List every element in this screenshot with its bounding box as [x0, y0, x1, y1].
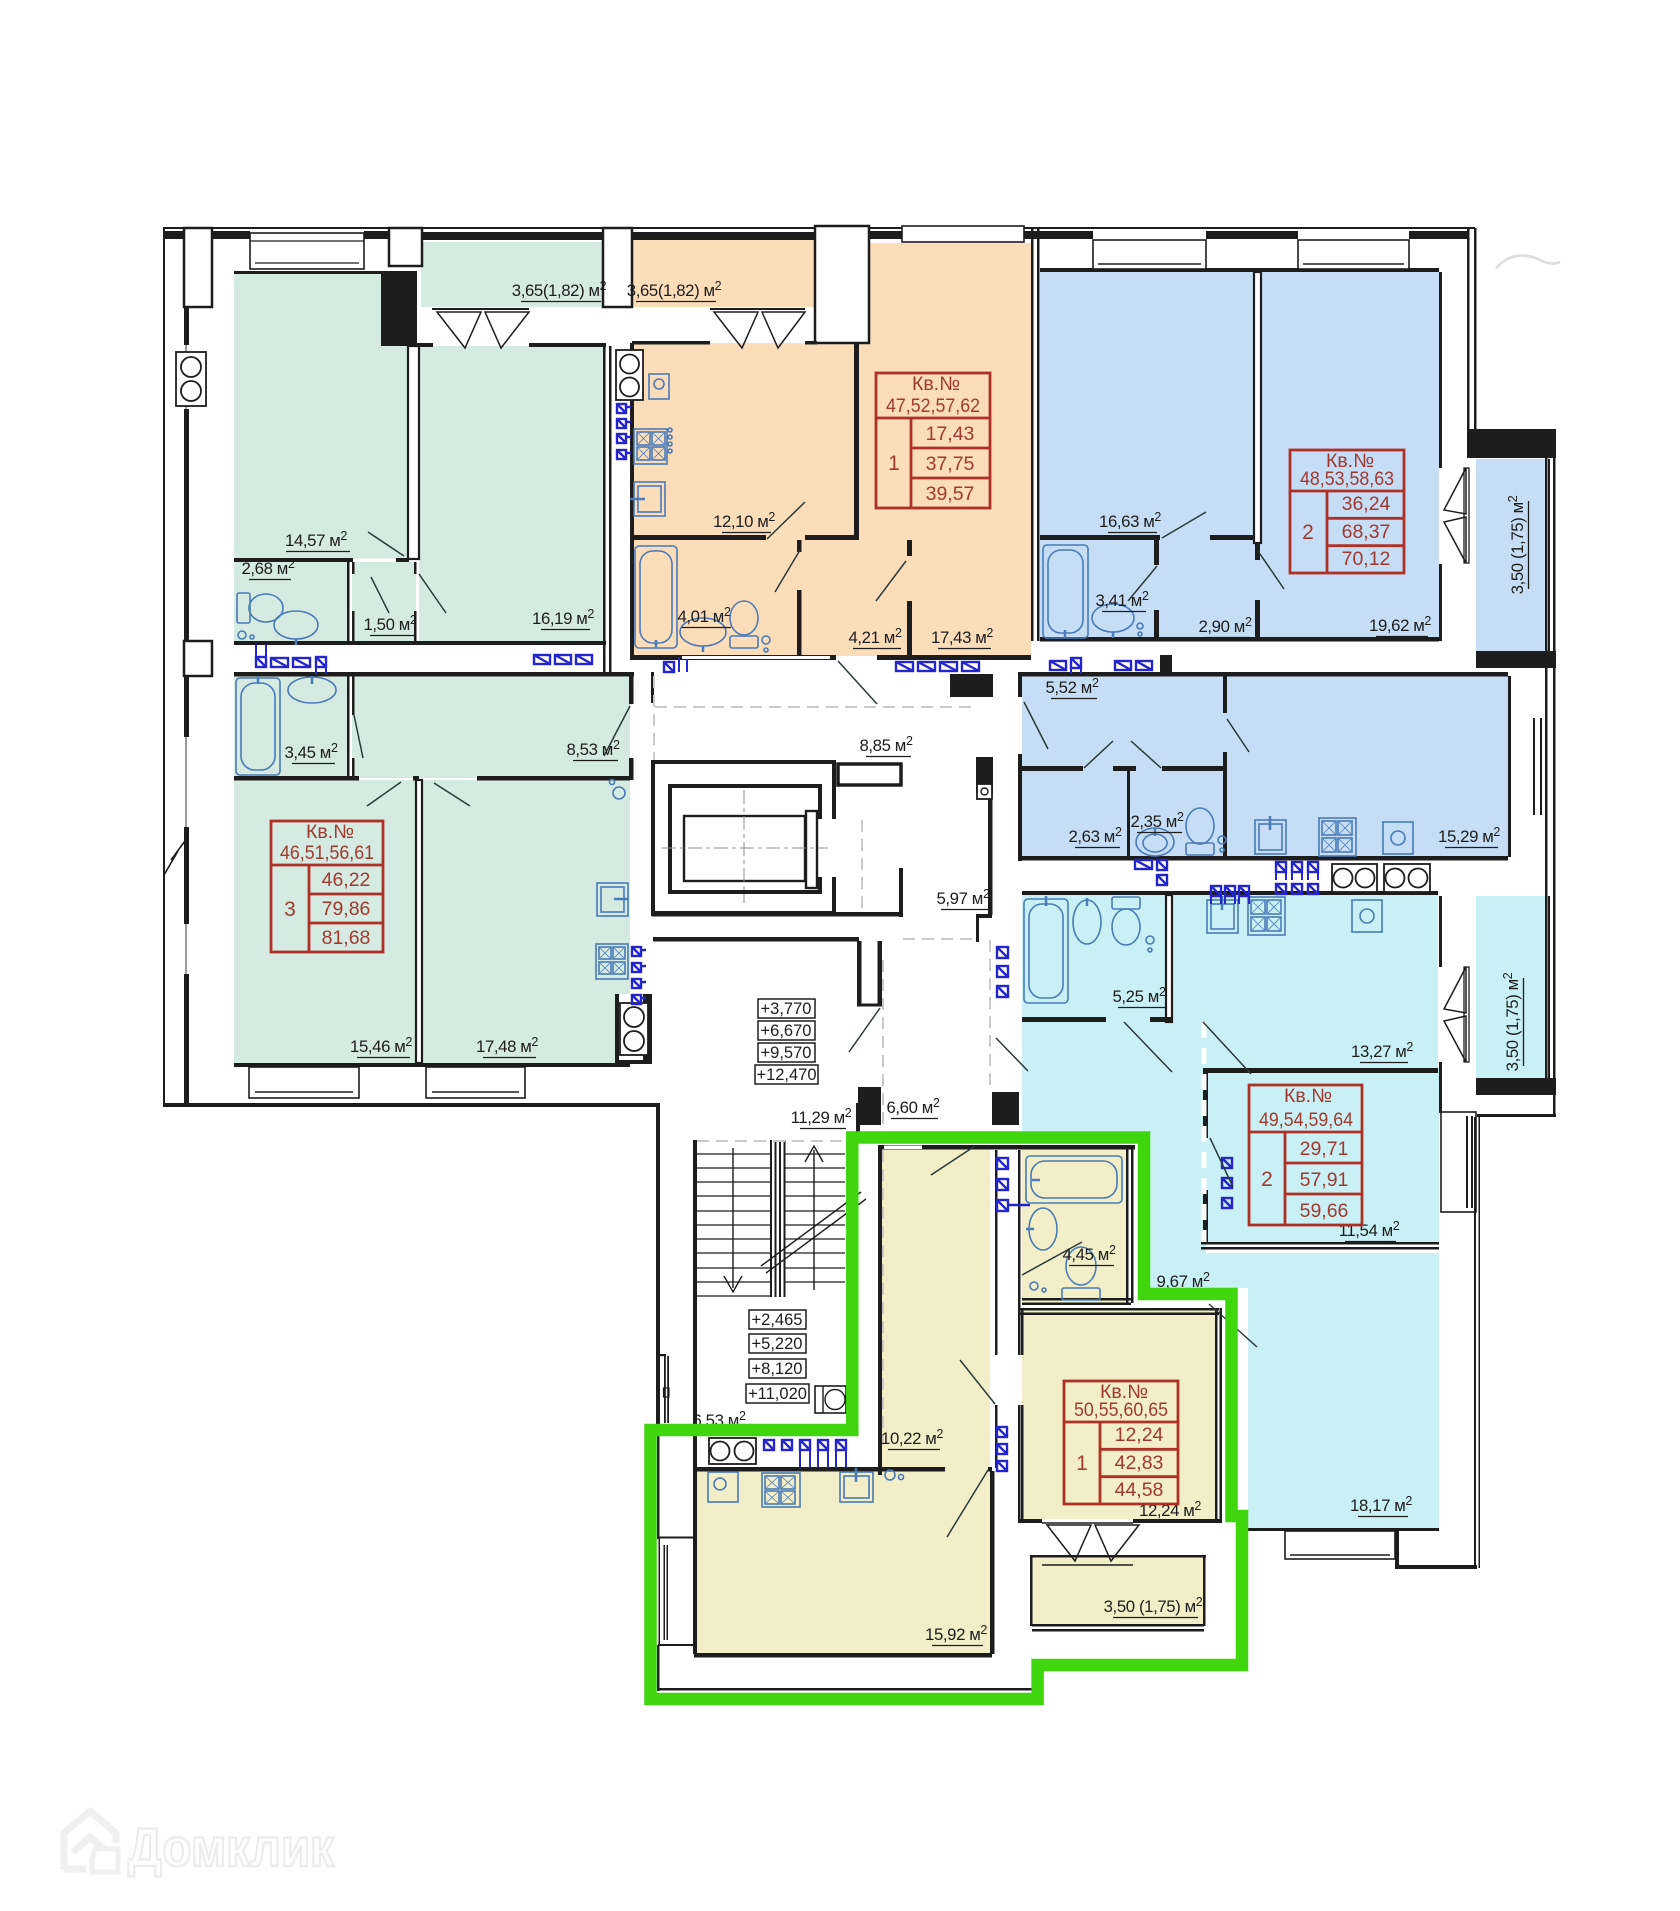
svg-text:79,86: 79,86	[322, 898, 371, 920]
svg-text:48,53,58,63: 48,53,58,63	[1300, 468, 1394, 490]
svg-text:12,10 м2: 12,10 м2	[713, 510, 775, 531]
svg-text:14,57 м2: 14,57 м2	[285, 529, 347, 550]
svg-text:12,24 м2: 12,24 м2	[1139, 1499, 1201, 1520]
svg-text:11,29 м2: 11,29 м2	[791, 1106, 852, 1127]
svg-text:1: 1	[888, 452, 900, 475]
svg-text:4,45 м2: 4,45 м2	[1062, 1243, 1115, 1264]
svg-text:57,91: 57,91	[1300, 1169, 1349, 1191]
svg-text:+12,470: +12,470	[756, 1066, 816, 1084]
svg-text:16,19 м2: 16,19 м2	[532, 607, 594, 628]
svg-text:49,54,59,64: 49,54,59,64	[1259, 1109, 1353, 1131]
svg-text:10,22 м2: 10,22 м2	[881, 1427, 943, 1448]
svg-text:5,52 м2: 5,52 м2	[1045, 676, 1098, 697]
svg-text:5,25 м2: 5,25 м2	[1112, 985, 1165, 1006]
svg-text:+6,670: +6,670	[761, 1022, 812, 1040]
svg-text:2: 2	[1261, 1168, 1273, 1191]
svg-text:3,50 (1,75) м2: 3,50 (1,75) м2	[1104, 1595, 1203, 1616]
svg-text:8,53 м2: 8,53 м2	[566, 738, 619, 759]
svg-text:3,65(1,82) м2: 3,65(1,82) м2	[627, 279, 722, 300]
svg-text:59,66: 59,66	[1300, 1200, 1349, 1222]
svg-text:12,24: 12,24	[1115, 1424, 1164, 1446]
svg-text:2,90 м2: 2,90 м2	[1198, 615, 1251, 636]
svg-text:3,45 м2: 3,45 м2	[284, 741, 337, 762]
svg-text:17,43 м2: 17,43 м2	[931, 626, 993, 647]
svg-text:39,57: 39,57	[926, 483, 975, 505]
svg-text:81,68: 81,68	[322, 927, 371, 949]
svg-text:46,51,56,61: 46,51,56,61	[280, 842, 374, 864]
svg-text:+3,770: +3,770	[761, 1000, 812, 1018]
svg-text:4,21 м2: 4,21 м2	[848, 626, 901, 647]
svg-text:1: 1	[1076, 1452, 1088, 1475]
svg-text:5,97 м2: 5,97 м2	[936, 887, 989, 908]
svg-text:Кв.№: Кв.№	[912, 373, 960, 395]
svg-text:13,27 м2: 13,27 м2	[1351, 1040, 1413, 1061]
svg-text:+2,465: +2,465	[752, 1311, 803, 1329]
svg-text:+9,570: +9,570	[761, 1044, 812, 1062]
svg-text:68,37: 68,37	[1342, 521, 1391, 543]
svg-text:36,24: 36,24	[1342, 493, 1391, 515]
svg-text:2,35 м2: 2,35 м2	[1130, 810, 1183, 831]
svg-text:3,50 (1,75) м2: 3,50 (1,75) м2	[1501, 972, 1522, 1071]
svg-text:47,52,57,62: 47,52,57,62	[886, 395, 980, 417]
svg-text:37,75: 37,75	[926, 453, 975, 475]
svg-text:2,63 м2: 2,63 м2	[1068, 825, 1121, 846]
svg-text:29,71: 29,71	[1300, 1138, 1349, 1160]
svg-text:3,41 м2: 3,41 м2	[1095, 589, 1148, 610]
svg-text:6,60 м2: 6,60 м2	[886, 1096, 939, 1117]
svg-text:3: 3	[284, 898, 296, 921]
svg-text:+11,020: +11,020	[748, 1385, 807, 1403]
svg-text:70,12: 70,12	[1342, 548, 1391, 570]
svg-text:4,01 м2: 4,01 м2	[677, 605, 730, 626]
svg-text:50,55,60,65: 50,55,60,65	[1074, 1399, 1168, 1421]
svg-text:15,46 м2: 15,46 м2	[350, 1035, 412, 1056]
svg-text:8,85 м2: 8,85 м2	[859, 734, 912, 755]
svg-text:17,43: 17,43	[926, 423, 975, 445]
svg-text:+5,220: +5,220	[752, 1335, 803, 1353]
svg-text:18,17 м2: 18,17 м2	[1350, 1494, 1412, 1515]
svg-text:17,48 м2: 17,48 м2	[476, 1035, 538, 1056]
svg-text:44,58: 44,58	[1115, 1479, 1164, 1501]
svg-text:Домклик: Домклик	[128, 1818, 335, 1878]
svg-text:46,22: 46,22	[322, 869, 371, 891]
svg-text:19,62 м2: 19,62 м2	[1369, 614, 1431, 635]
svg-text:3,50 (1,75) м2: 3,50 (1,75) м2	[1506, 495, 1527, 594]
svg-text:Кв.№: Кв.№	[1284, 1085, 1332, 1107]
svg-text:42,83: 42,83	[1115, 1452, 1164, 1474]
svg-text:2,68 м2: 2,68 м2	[241, 557, 294, 578]
svg-text:15,92 м2: 15,92 м2	[925, 1623, 987, 1644]
svg-text:16,63 м2: 16,63 м2	[1099, 510, 1161, 531]
svg-text:+8,120: +8,120	[752, 1360, 803, 1378]
svg-text:Кв.№: Кв.№	[306, 821, 354, 843]
svg-text:3,65(1,82) м2: 3,65(1,82) м2	[512, 279, 607, 300]
svg-text:2: 2	[1302, 521, 1314, 544]
svg-text:11,54 м2: 11,54 м2	[1339, 1219, 1400, 1240]
svg-text:1,50 м2: 1,50 м2	[363, 613, 416, 634]
svg-text:15,29 м2: 15,29 м2	[1438, 825, 1500, 846]
